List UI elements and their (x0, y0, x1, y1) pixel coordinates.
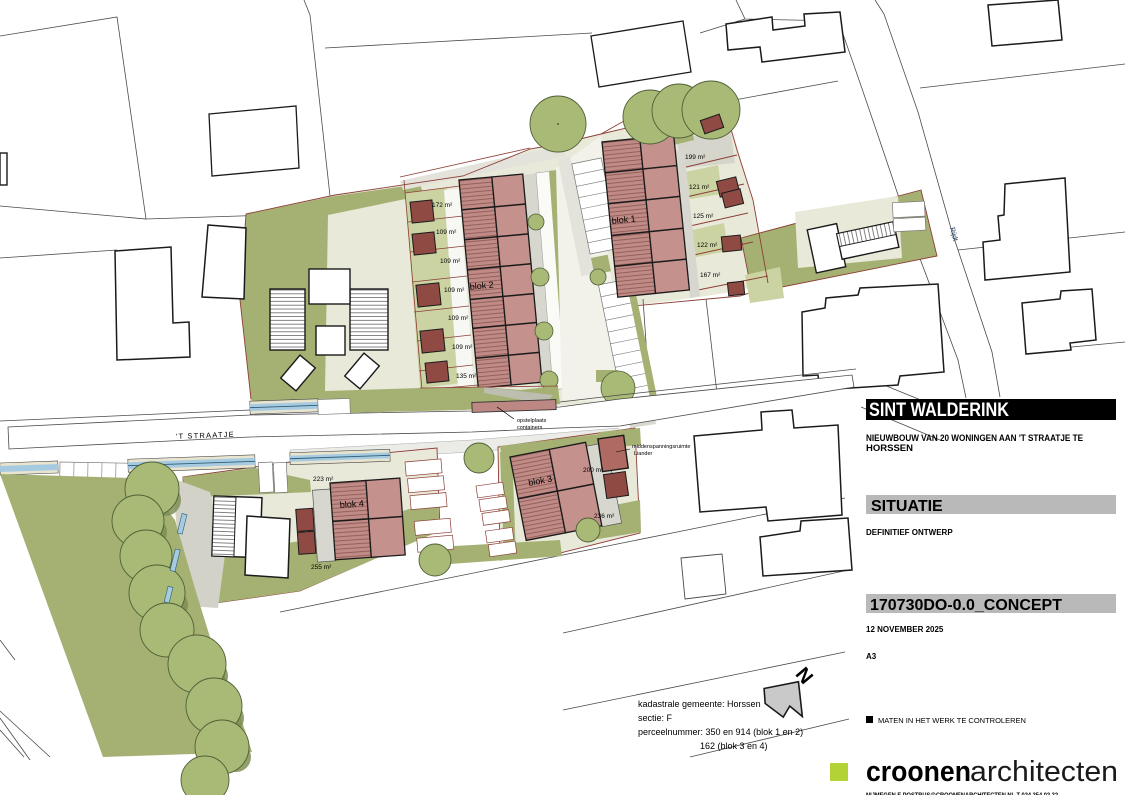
svg-text:perceelnummer: 350 en 914 (blo: perceelnummer: 350 en 914 (blok 1 en 2) (638, 727, 803, 737)
svg-text:172 m²: 172 m² (432, 202, 453, 209)
svg-text:135 m²: 135 m² (456, 373, 477, 380)
svg-text:170730DO-0.0_CONCEPT: 170730DO-0.0_CONCEPT (870, 597, 1062, 614)
svg-text:opstelplaats: opstelplaats (517, 418, 547, 424)
svg-text:SITUATIE: SITUATIE (871, 498, 943, 515)
svg-text:MATEN IN HET WERK TE CONTROLER: MATEN IN HET WERK TE CONTROLEREN (878, 716, 1026, 725)
svg-text:HORSSEN: HORSSEN (866, 443, 913, 454)
svg-text:kadastrale gemeente: Horssen: kadastrale gemeente: Horssen (638, 699, 761, 709)
svg-text:109 m²: 109 m² (436, 229, 457, 236)
svg-text:167 m²: 167 m² (700, 272, 721, 279)
svg-text:121 m²: 121 m² (689, 184, 710, 191)
svg-text:162 (blok 3 en 4): 162 (blok 3 en 4) (700, 741, 768, 751)
svg-text:255 m²: 255 m² (311, 564, 332, 571)
svg-text:125 m²: 125 m² (693, 213, 714, 220)
svg-text:sectie: F: sectie: F (638, 713, 673, 723)
svg-text:109 m²: 109 m² (440, 258, 461, 265)
svg-text:122 m²: 122 m² (697, 242, 718, 249)
svg-text:109 m²: 109 m² (452, 344, 473, 351)
svg-text:architecten: architecten (970, 756, 1118, 788)
svg-text:200 m²: 200 m² (583, 467, 604, 474)
svg-text:199 m²: 199 m² (685, 154, 706, 161)
svg-text:109 m²: 109 m² (444, 287, 465, 294)
svg-text:236 m²: 236 m² (594, 513, 615, 520)
svg-text:containers: containers (517, 425, 543, 431)
svg-text:DEFINITIEF ONTWERP: DEFINITIEF ONTWERP (866, 528, 953, 537)
svg-text:blok 4: blok 4 (339, 498, 364, 510)
svg-text:109 m²: 109 m² (448, 315, 469, 322)
svg-text:SINT WALDERINK: SINT WALDERINK (869, 400, 1009, 421)
svg-text:12 NOVEMBER 2025: 12 NOVEMBER 2025 (866, 625, 944, 634)
svg-text:croonen: croonen (866, 756, 971, 788)
svg-text:223 m²: 223 m² (313, 476, 334, 483)
svg-text:A3: A3 (866, 652, 877, 661)
svg-text:Liander: Liander (634, 451, 653, 457)
svg-text:middenspanningsruimte: middenspanningsruimte (632, 444, 690, 450)
